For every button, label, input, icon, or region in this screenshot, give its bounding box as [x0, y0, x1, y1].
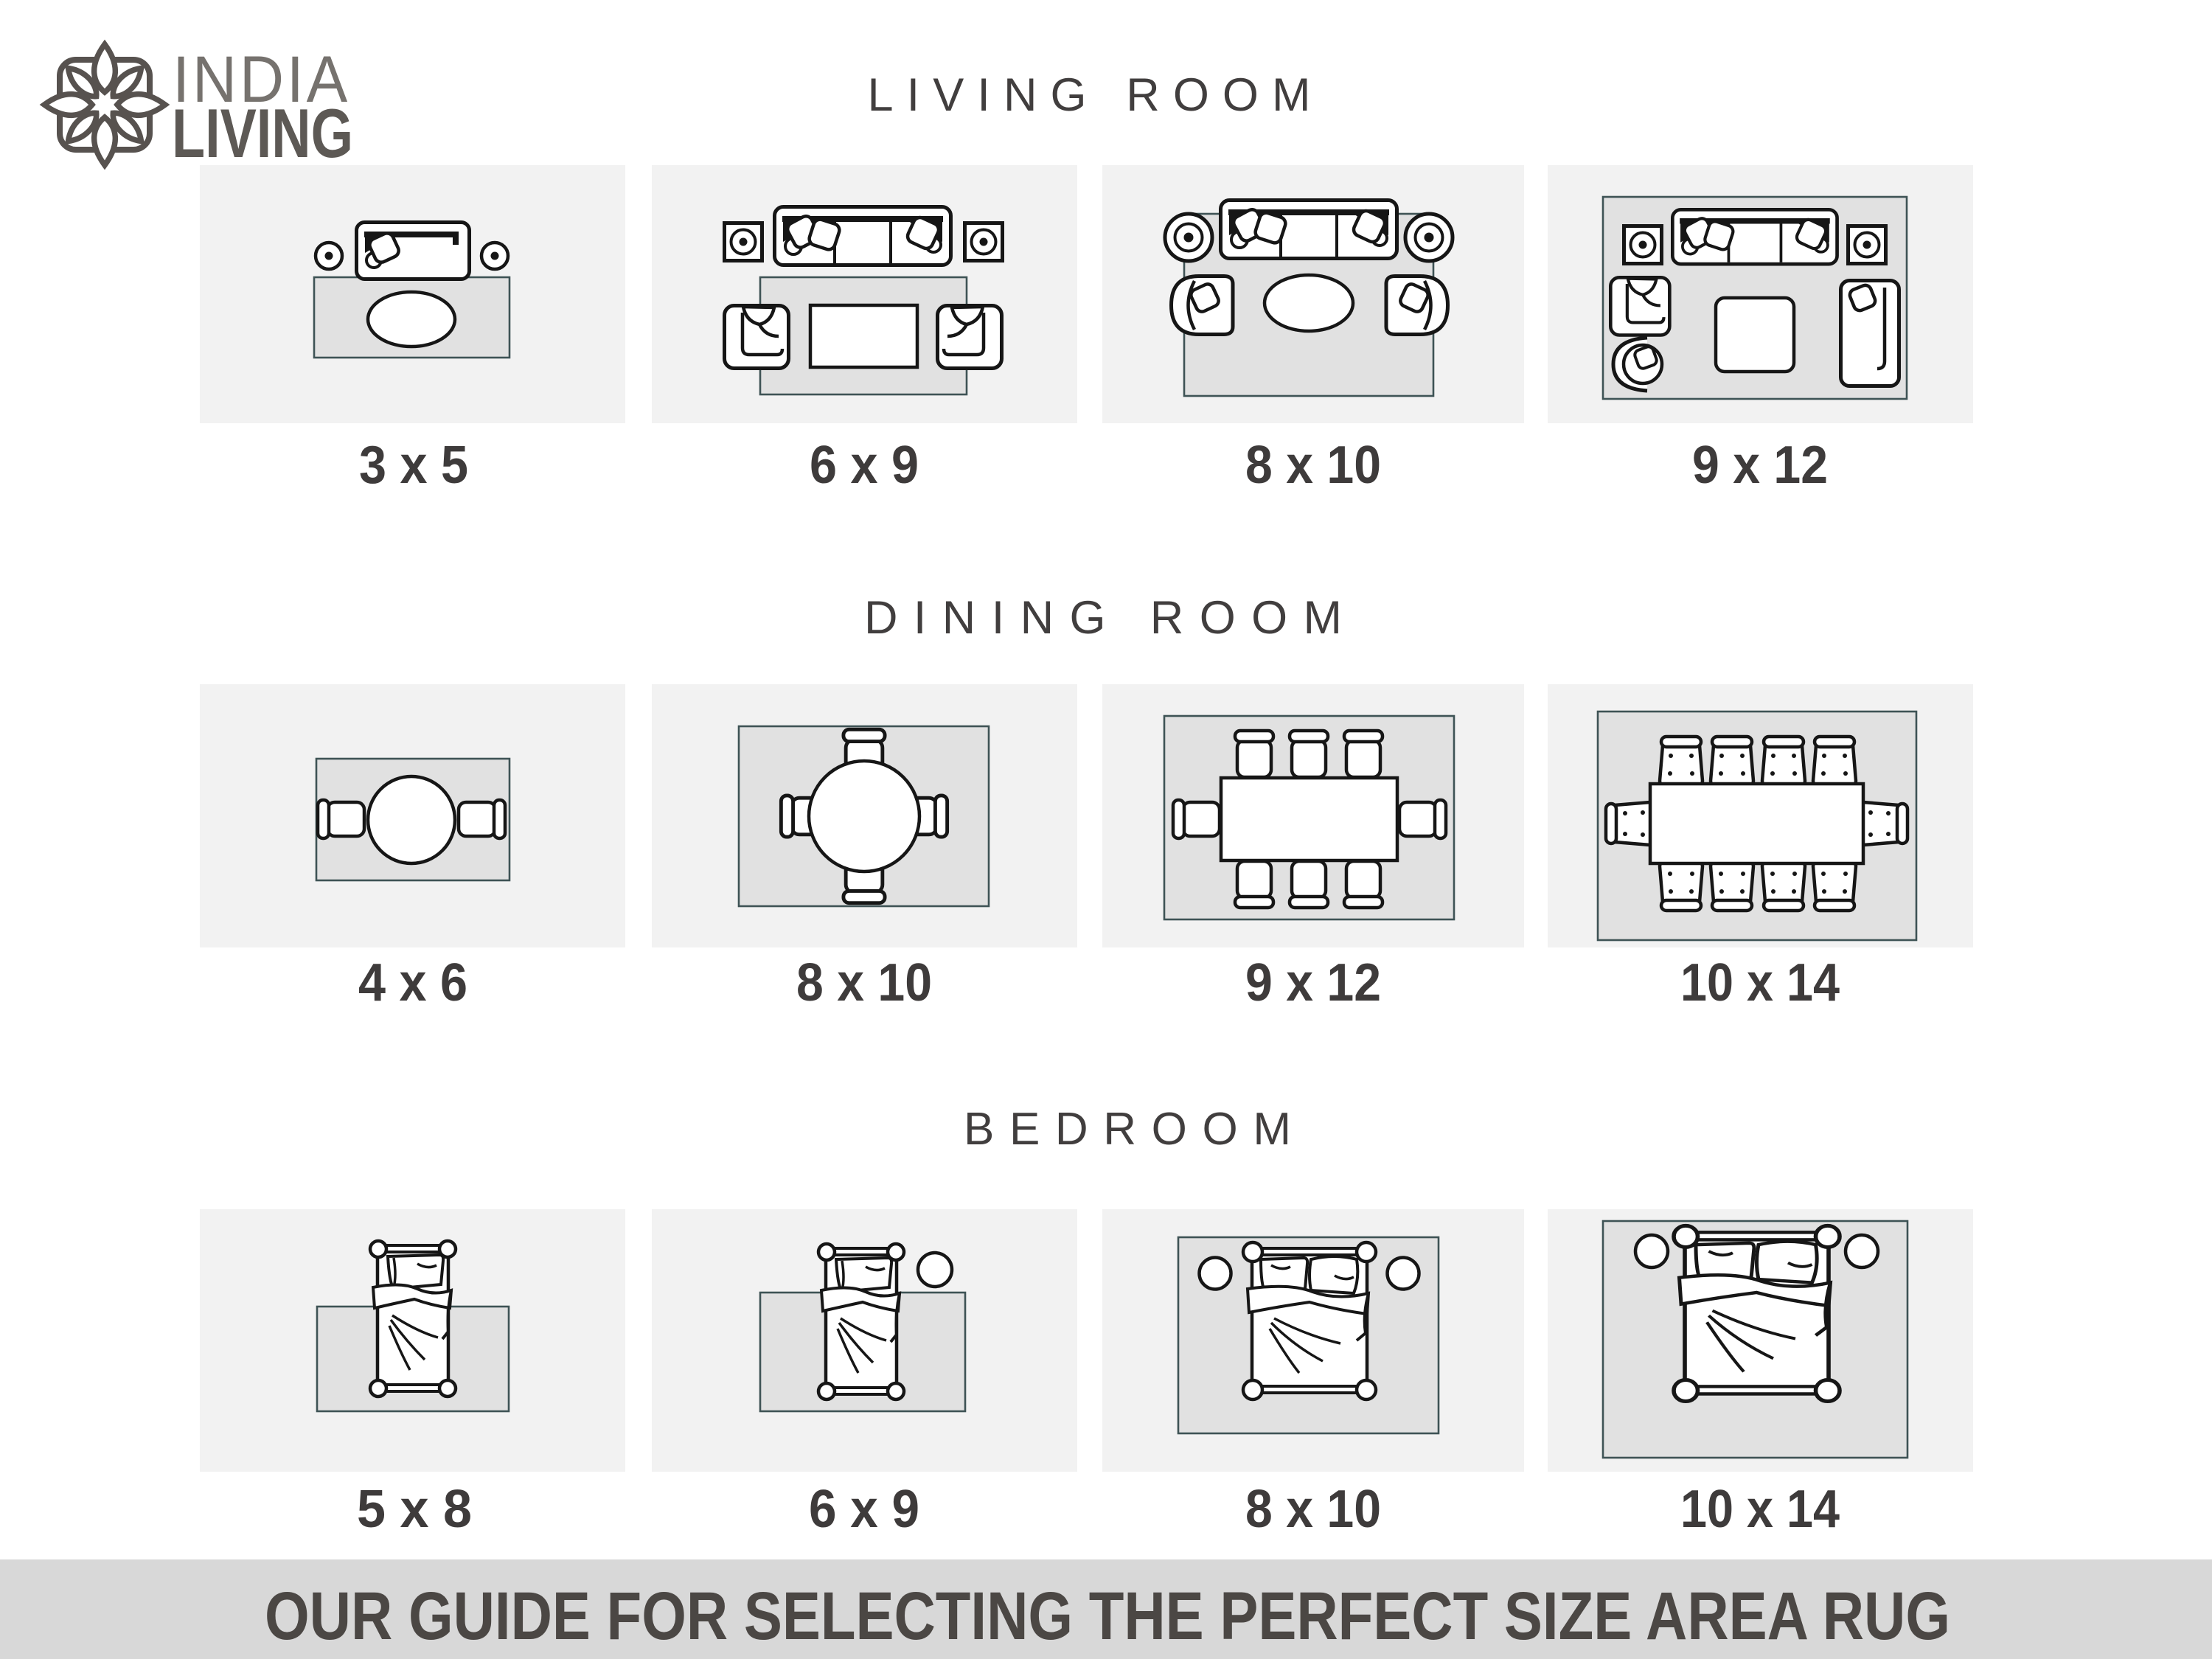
svg-text:3 x 5: 3 x 5 [359, 436, 468, 495]
svg-text:OUR GUIDE FOR SELECTING THE PE: OUR GUIDE FOR SELECTING THE PERFECT SIZE… [265, 1579, 1950, 1654]
svg-text:8 x 10: 8 x 10 [1245, 436, 1381, 495]
svg-text:10 x 14: 10 x 14 [1680, 1480, 1840, 1539]
svg-text:4 x 6: 4 x 6 [358, 953, 467, 1012]
svg-text:9 x 12: 9 x 12 [1692, 436, 1828, 495]
svg-text:6 x 9: 6 x 9 [810, 436, 919, 495]
svg-text:8 x 10: 8 x 10 [1245, 1480, 1381, 1539]
svg-text:9 x 12: 9 x 12 [1245, 953, 1381, 1012]
svg-text:6 x 9: 6 x 9 [809, 1480, 919, 1539]
svg-text:5 x 8: 5 x 8 [357, 1480, 472, 1539]
svg-text:8 x 10: 8 x 10 [796, 953, 932, 1012]
svg-text:10 x 14: 10 x 14 [1680, 953, 1840, 1012]
svg-text:LIVING: LIVING [172, 94, 353, 172]
